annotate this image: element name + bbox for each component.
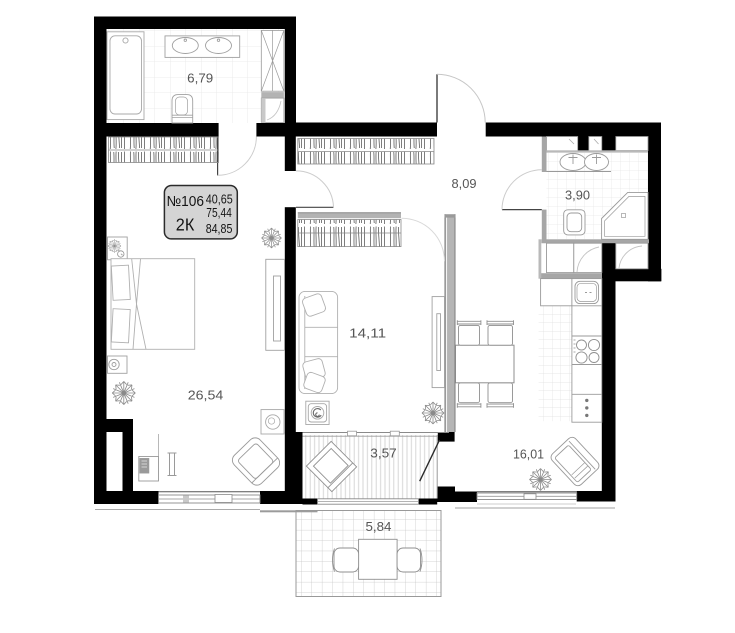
svg-text:84,85: 84,85: [206, 222, 233, 236]
svg-text:14,11: 14,11: [349, 327, 386, 341]
svg-text:3,57: 3,57: [370, 447, 397, 461]
svg-text:5,84: 5,84: [366, 520, 392, 534]
svg-text:16,01: 16,01: [513, 448, 544, 462]
svg-text:40,65: 40,65: [206, 193, 233, 207]
svg-text:№106: №106: [167, 194, 205, 210]
svg-text:2К: 2К: [176, 215, 195, 235]
svg-text:26,54: 26,54: [188, 389, 224, 403]
svg-text:3,90: 3,90: [565, 189, 590, 203]
svg-text:6,79: 6,79: [187, 72, 213, 86]
svg-text:75,44: 75,44: [206, 206, 232, 220]
svg-text:8,09: 8,09: [452, 177, 477, 191]
